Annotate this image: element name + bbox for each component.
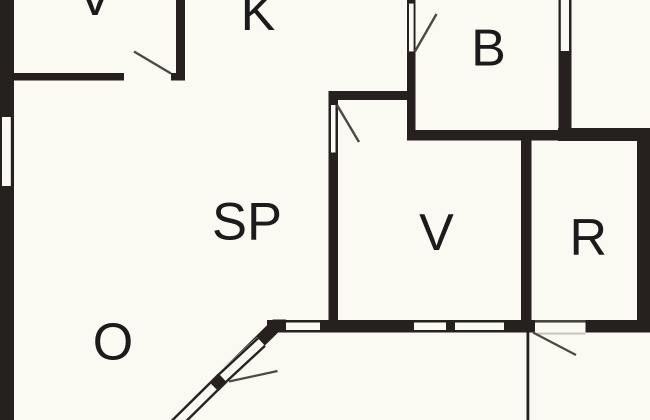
svg-text:V: V [419,204,454,262]
svg-text:O: O [93,314,133,372]
svg-text:K: K [241,0,276,42]
svg-text:R: R [570,209,608,267]
svg-text:SP: SP [212,193,282,252]
svg-text:B: B [471,20,506,78]
svg-text:V: V [78,0,113,27]
